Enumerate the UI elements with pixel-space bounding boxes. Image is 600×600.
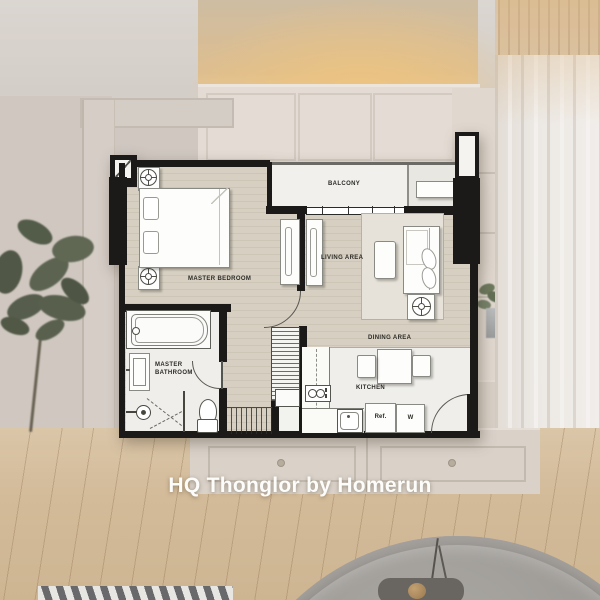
- shower-partition: [183, 391, 185, 432]
- blanket-corner-fold: [211, 188, 228, 204]
- refrigerator-label: Ref.: [375, 414, 387, 422]
- refrigerator: Ref.: [365, 403, 396, 433]
- screenshot-root: BALCONY: [0, 0, 600, 600]
- table-lamp-inner: [145, 174, 152, 181]
- window-tick: [348, 206, 349, 214]
- table-lamp-inner: [145, 273, 152, 280]
- cooktop-burner: [316, 389, 325, 398]
- bathroom-door-arc: [192, 361, 220, 389]
- pillow: [143, 231, 159, 254]
- shoe-cabinet-hatch: [227, 407, 272, 434]
- balcony-label: BALCONY: [328, 181, 360, 189]
- wall-right-column: [453, 178, 480, 264]
- wall-bathroom-right-lower: [219, 388, 227, 437]
- master-bedroom-label: MASTER BEDROOM: [188, 276, 251, 284]
- shear-wall-outline: [455, 132, 479, 180]
- ac-condenser-unit: [416, 181, 454, 198]
- master-bathroom-label-line2: BATHROOM: [155, 370, 193, 378]
- watermark-caption: HQ Thonglor by Homerun: [0, 474, 600, 498]
- kitchen-label: KITCHEN: [356, 385, 385, 393]
- living-area-label: LIVING AREA: [321, 255, 363, 263]
- floor-plan: BALCONY: [0, 0, 600, 600]
- vanity-tap: [126, 369, 130, 371]
- shower-head-center: [141, 410, 146, 415]
- ledge-divider-line: [407, 165, 409, 209]
- wall-bathroom-right-upper: [219, 304, 227, 362]
- window-tick: [322, 206, 323, 214]
- toilet-tank: [197, 419, 218, 433]
- tub-faucet: [132, 327, 140, 335]
- master-bathroom-label-line1: MASTER: [155, 362, 193, 370]
- dining-chair: [412, 355, 431, 377]
- vanity-basin: [133, 358, 146, 386]
- entrance-door-leaf: [467, 394, 470, 433]
- bathtub-inner-rim: [135, 317, 204, 343]
- dining-table: [377, 349, 412, 384]
- dining-chair: [357, 355, 376, 378]
- pillow: [143, 197, 159, 220]
- coffee-table: [374, 241, 396, 279]
- floor-lamp-inner: [418, 303, 425, 310]
- washer-label: W: [408, 415, 414, 423]
- bedroom-door-arc: [264, 291, 301, 328]
- entrance-door-arc: [431, 394, 470, 433]
- master-bathroom-label: MASTER BATHROOM: [155, 362, 193, 377]
- tv-console-slot: [285, 227, 292, 276]
- wall-balcony-left: [267, 162, 272, 210]
- wall-left: [119, 163, 125, 437]
- cooktop-knob: [325, 394, 327, 398]
- tv-console-slot: [310, 228, 317, 277]
- bathroom-door-leaf: [221, 361, 223, 389]
- balcony-rail-line: [268, 162, 456, 165]
- washer: W: [396, 404, 425, 433]
- wall-right: [470, 261, 478, 437]
- cooktop-knob: [325, 388, 327, 392]
- closet-shelf-box: [275, 389, 300, 407]
- dining-area-label: DINING AREA: [368, 335, 411, 343]
- wall-top-bedroom: [123, 160, 270, 167]
- sink-faucet-dot: [347, 415, 350, 418]
